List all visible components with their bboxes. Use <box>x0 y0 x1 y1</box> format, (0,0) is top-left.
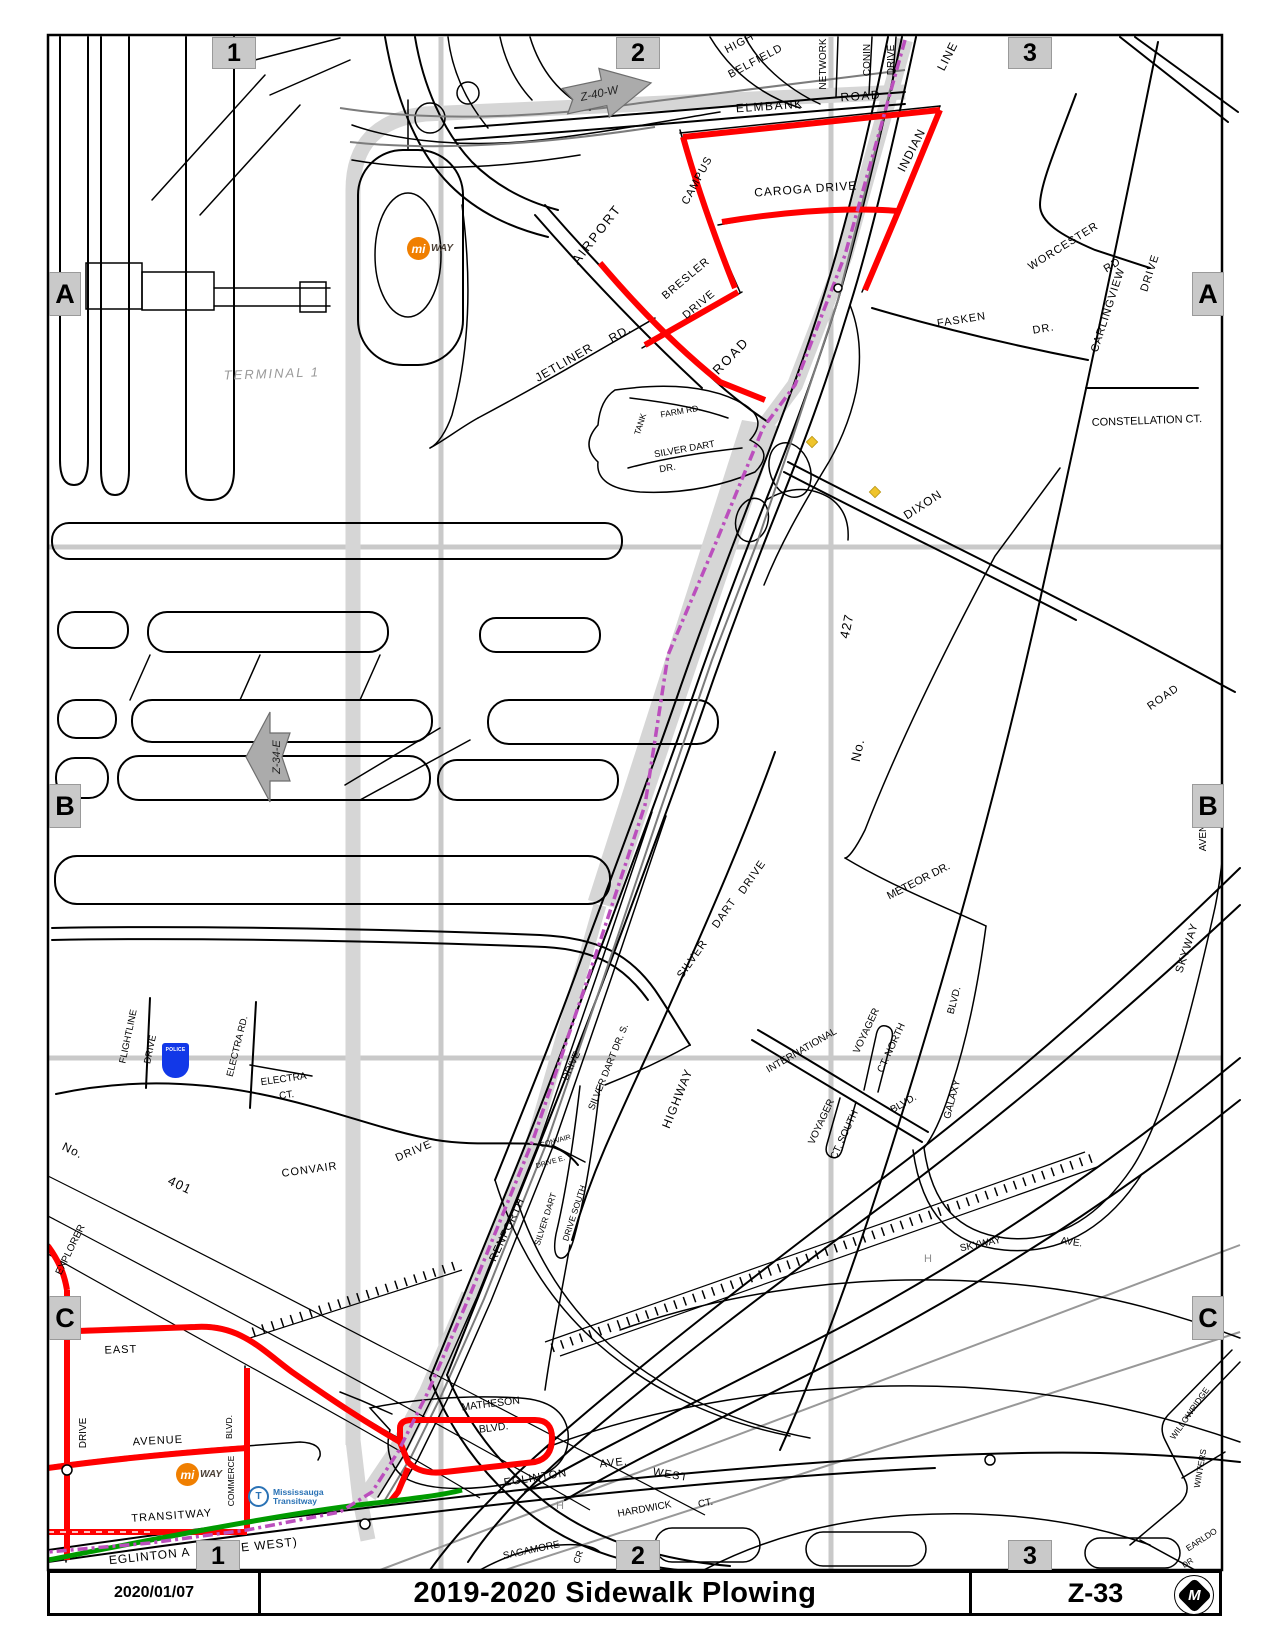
street-label: DRIVE <box>1138 253 1161 293</box>
street-label: 427 <box>837 612 857 639</box>
street-label: BLVD. <box>889 1092 919 1116</box>
street-label: UE WEST) <box>231 1535 299 1556</box>
street-label: NETWORK <box>818 38 829 89</box>
street-label: DART <box>710 896 739 931</box>
street-label: CAMPUS <box>680 154 716 206</box>
street-label: TERMINAL 1 <box>223 364 320 382</box>
grid-marker-bottom-1: 1 <box>196 1540 240 1572</box>
map-sheet-number: Z-33 M <box>972 1573 1219 1613</box>
plowing-routes-red <box>48 110 940 1560</box>
street-label: CONSTELLATION CT. <box>1092 413 1203 429</box>
street-label: DR <box>1180 1556 1195 1570</box>
street-label: COMMERCE <box>226 1455 236 1506</box>
street-label: H <box>556 1500 564 1512</box>
street-label: HARDWICK <box>617 1499 673 1519</box>
grid-marker-top-2: 2 <box>616 37 660 69</box>
grid-marker-left-a: A <box>49 272 81 316</box>
street-label: DRIVE <box>394 1138 434 1164</box>
street-label: JETLINER <box>532 340 595 384</box>
street-label: SAGAMORE <box>502 1539 561 1562</box>
street-label: BLVD. <box>478 1420 509 1436</box>
grid-marker-right-c: C <box>1192 1296 1224 1340</box>
street-label: SKYWAY <box>959 1235 1002 1254</box>
grid-marker-left-b: B <box>49 784 81 828</box>
street-label: 401 <box>166 1173 195 1197</box>
street-label: AVE. <box>1060 1236 1083 1250</box>
police-station-icon: POLICE <box>162 1043 189 1078</box>
street-label: CT. <box>697 1497 714 1510</box>
street-label: HIGHWAY <box>659 1067 696 1131</box>
street-label: SILVER DART <box>653 439 716 461</box>
point-markers <box>62 284 995 1529</box>
street-label: H <box>924 1253 932 1265</box>
street-label: WINTERS <box>1192 1448 1209 1489</box>
street-label: RD. <box>606 322 634 346</box>
miway-circle-icon: mi <box>176 1463 199 1486</box>
street-label: SILVER <box>675 938 710 981</box>
street-label: EAST <box>104 1343 137 1356</box>
street-label: DRIVE <box>886 44 897 75</box>
street-label: DR. <box>1032 321 1056 336</box>
street-label: ROAD <box>1145 682 1181 712</box>
street-label: BLVD. <box>224 1415 234 1439</box>
street-label: CAROGA DRIVE <box>754 178 858 199</box>
grid-marker-right-b: B <box>1192 784 1224 828</box>
map-date: 2020/01/07 <box>50 1573 261 1613</box>
street-label: CONVAIR <box>281 1160 338 1180</box>
street-label: WORCESTER <box>1026 220 1101 273</box>
street-label: EARLDO <box>1184 1526 1219 1554</box>
street-label: DRIVE <box>78 1417 89 1448</box>
street-label: No. <box>848 737 868 763</box>
street-label: ELECTRA <box>260 1071 308 1088</box>
street-label: SILVER DART <box>532 1191 558 1246</box>
transitway-icon: T <box>248 1486 269 1507</box>
street-label: AVEN <box>1198 825 1209 852</box>
street-label: DR. <box>659 462 677 476</box>
mississauga-transitway-logo: T MississaugaTransitway <box>248 1486 324 1507</box>
street-label: CR <box>571 1549 585 1565</box>
street-label: ROAD <box>840 88 882 105</box>
street-label: DIXON <box>901 487 945 522</box>
grid-marker-bottom-3: 3 <box>1008 1540 1052 1572</box>
map-title: 2019-2020 Sidewalk Plowing <box>261 1573 972 1613</box>
street-label: TANK <box>632 412 648 436</box>
street-label: AIRPORT <box>569 201 625 267</box>
street-label: GALAXY <box>942 1078 963 1120</box>
title-bar: 2020/01/07 2019-2020 Sidewalk Plowing Z-… <box>47 1570 1222 1616</box>
miway-circle-icon: mi <box>407 237 430 260</box>
miway-logo-airport: miWAY <box>407 237 453 260</box>
grid-marker-top-1: 1 <box>212 37 256 69</box>
street-label: DRIVE <box>737 858 769 897</box>
street-label: INTERNATIONAL <box>765 1026 840 1075</box>
street-label: ELECTRA RD. <box>225 1015 251 1078</box>
transitway-corridor <box>353 40 905 1540</box>
miway-logo-commerce: miWAY <box>176 1463 222 1486</box>
grid-marker-bottom-2: 2 <box>616 1540 660 1572</box>
z34e-arrow-label: Z-34-E <box>271 740 283 775</box>
street-label: FASKEN <box>936 310 987 330</box>
plowing-map-canvas: TERMINAL 1HIGHBELFIELDNETWORKCONINDRIVEE… <box>0 0 1275 1650</box>
street-label: SKYWAY <box>1173 922 1200 975</box>
street-label: ROAD <box>710 334 752 377</box>
grid-marker-top-3: 3 <box>1008 37 1052 69</box>
street-label: CONIN <box>862 44 873 76</box>
grid-marker-right-a: A <box>1192 272 1224 316</box>
street-label: CT. <box>278 1089 294 1102</box>
street-label: TRANSITWAY <box>131 1507 213 1525</box>
street-label: BLVD. <box>946 985 964 1015</box>
street-label: WEST <box>652 1466 689 1484</box>
street-label: No. <box>60 1139 86 1161</box>
street-label: AVENUE <box>132 1434 183 1449</box>
street-label: SILVER DART DR. S. <box>586 1022 631 1111</box>
mississauga-city-logo: M <box>1174 1575 1214 1615</box>
street-label: FARM RD. <box>660 403 702 420</box>
grid-marker-left-c: C <box>49 1296 81 1340</box>
street-label: EXPLORER <box>54 1223 88 1277</box>
street-label: LINE <box>934 39 960 73</box>
